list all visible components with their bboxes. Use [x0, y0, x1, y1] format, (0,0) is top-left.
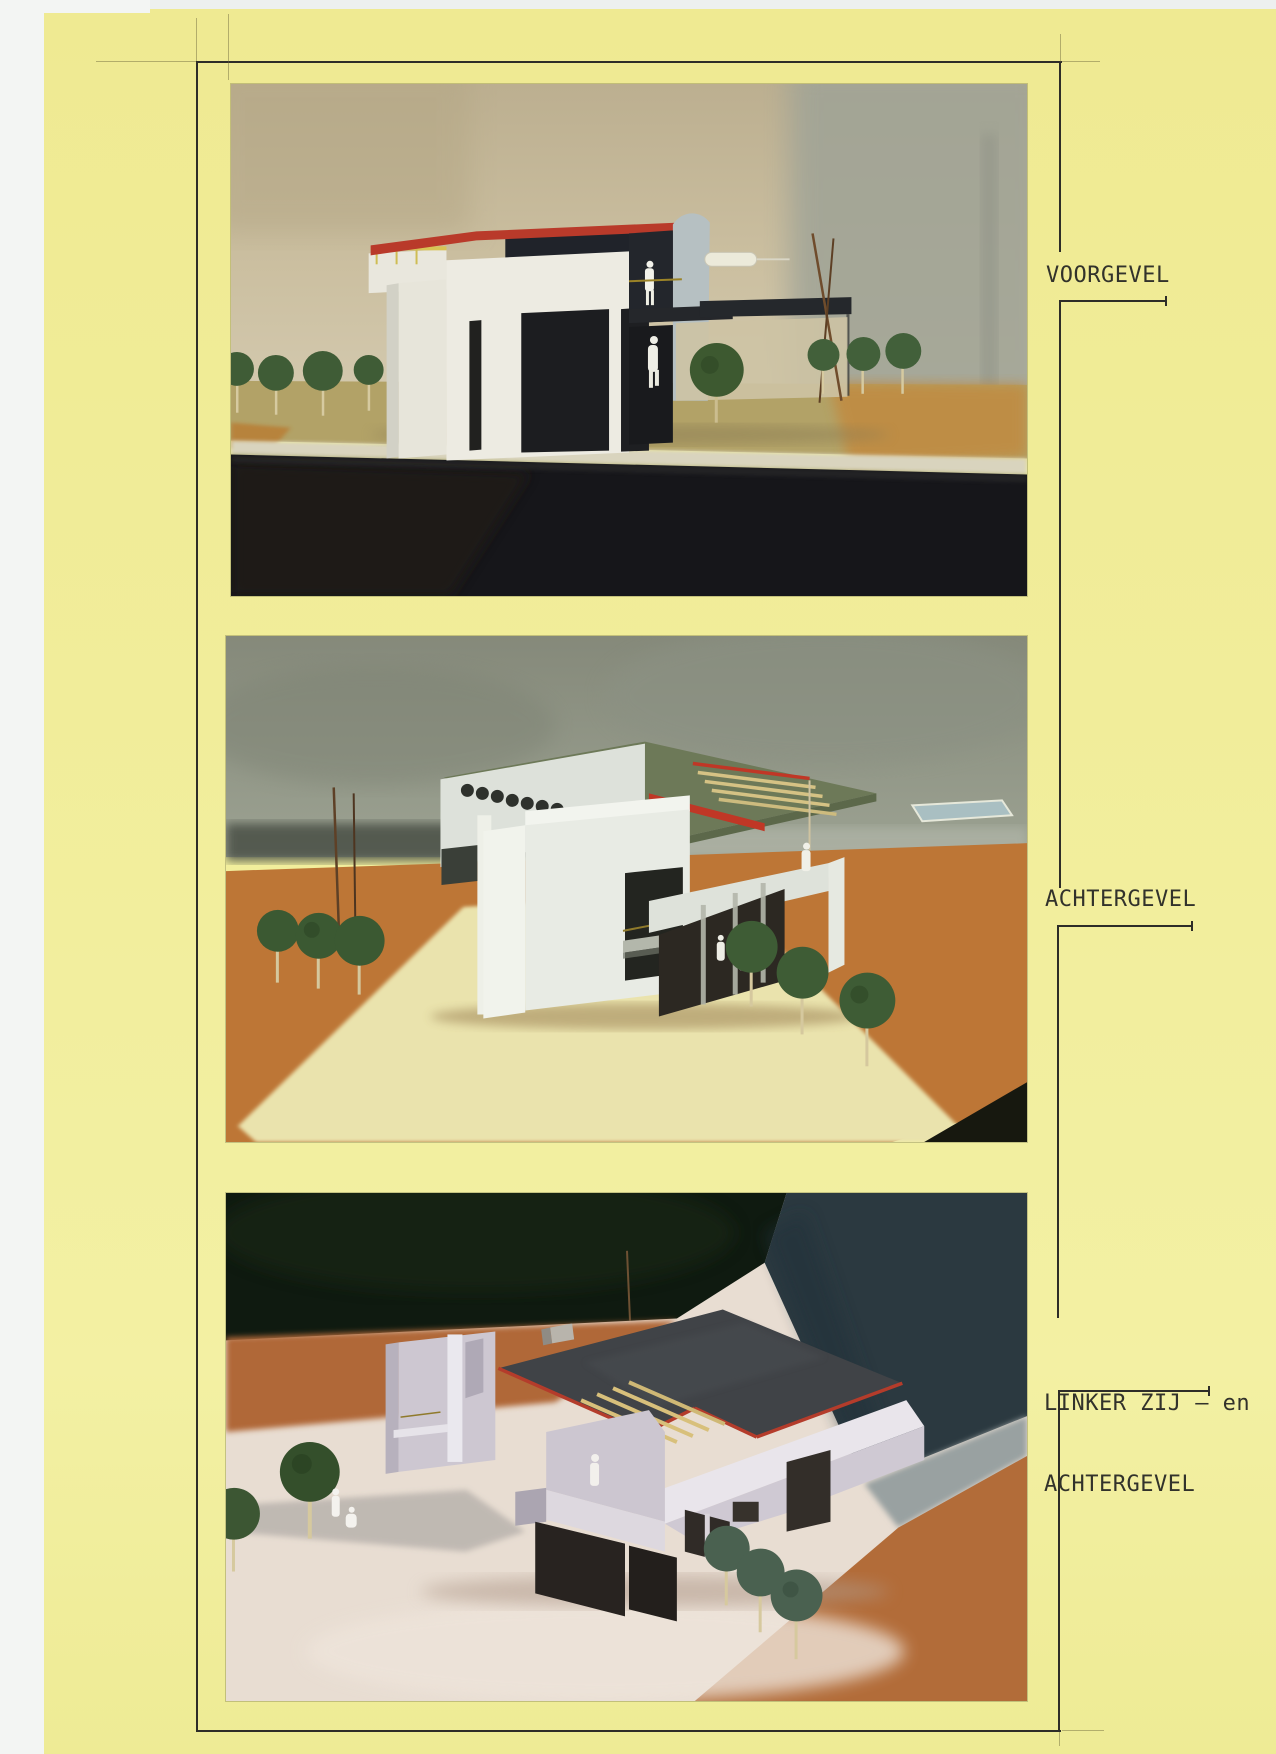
guide-line: [1062, 61, 1100, 62]
label-linker-zij-en-achtergevel: LINKER ZIJ – en ACHTERGEVEL: [1044, 1336, 1250, 1552]
guide-line: [1060, 34, 1061, 62]
frame-line-bottom: [196, 1730, 1061, 1732]
guide-line: [196, 18, 197, 61]
guide-line: [228, 14, 229, 80]
scanned-page: VOORGEVEL ACHTERGEVEL LINKER ZIJ – en AC…: [0, 0, 1276, 1754]
photo-voorgevel: [230, 83, 1028, 597]
label-achtergevel: ACHTERGEVEL: [1045, 886, 1196, 913]
photo-achtergevel: [225, 635, 1028, 1143]
bracket-voorgevel: [1059, 300, 1167, 302]
label-linker-line2: ACHTERGEVEL: [1044, 1471, 1250, 1498]
bracket-achtergevel-tick: [1191, 921, 1193, 931]
scan-edge-left: [0, 0, 44, 1754]
guide-line: [1059, 1732, 1060, 1746]
bracket-achtergevel: [1057, 925, 1193, 927]
guide-line: [1062, 1730, 1104, 1731]
bracket-voorgevel-tick: [1165, 296, 1167, 306]
label-linker-line1: LINKER ZIJ – en: [1044, 1390, 1250, 1417]
frame-line-top: [196, 61, 1062, 63]
frame-line-right-seg2: [1059, 300, 1061, 888]
scan-edge-top: [0, 0, 1276, 9]
label-voorgevel: VOORGEVEL: [1046, 262, 1170, 289]
frame-line-right-seg1: [1059, 62, 1061, 252]
frame-line-right-seg3: [1057, 925, 1059, 1318]
frame-line-left: [196, 61, 198, 1732]
photo-linker-zij-en-achtergevel: [225, 1192, 1028, 1702]
guide-line: [96, 61, 196, 62]
